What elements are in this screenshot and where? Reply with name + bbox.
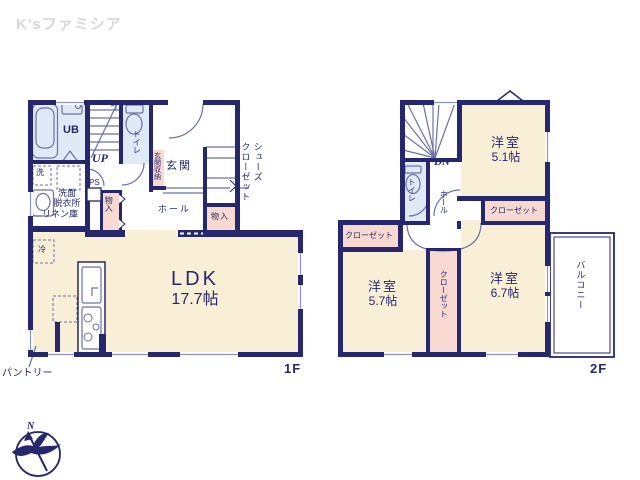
room-label-hall-2f: ホール [439,190,448,214]
room-label-hall-1f: ホール [158,204,191,214]
room-label-storage-inner: 物入 [104,196,113,212]
room-label-storage-right: 物入 [211,212,229,221]
room-label-balcony: バルコニー [575,260,585,310]
pipe-space-label: PS [89,178,100,187]
room-label-closet-a: クローゼット [490,206,538,215]
gable-vent-icon [497,91,523,101]
room-label-closet-c: クローゼット [439,270,448,340]
floor2-plan [338,91,614,357]
room-label-bedroom-c: 洋室 6.7帖 [466,272,544,301]
north-compass-icon [12,431,61,476]
room-label-closet-b: クローゼット [345,231,393,240]
floorplan-drawing [0,0,640,480]
room-label-toilet-2f: トイレ [407,178,416,202]
room-label-ldk: LDK 17.7帖 [130,268,260,309]
room-label-entrance: 玄関 [166,160,192,173]
fridge-label: 冷 [38,245,46,254]
washer-label: 洗 [36,168,44,177]
room-label-bedroom-a: 洋室 5.1帖 [468,136,544,165]
room-label-linen: リネン庫 [42,209,78,219]
floor2-tag: 2F [590,362,607,377]
floor1-plan [28,100,303,367]
stairs-down-label: DN [434,156,450,169]
room-label-shoes-closet: シューズ クローゼット [240,142,263,208]
brand-logo: K'sファミシア [16,13,122,34]
room-label-entrance-storage: 玄関収納 [153,152,161,180]
stairs-up-label: UP [92,152,108,166]
room-label-washroom: 洗面 脱衣所 [46,188,88,209]
room-label-toilet-1f: トイレ [132,130,141,154]
compass-north-label: N [27,421,34,433]
floorplan-page: K'sファミシア UB トイレ UP PS 玄関収納 玄関 シューズ クローゼッ… [0,0,640,480]
room-label-bedroom-b: 洋室 5.7帖 [344,280,422,309]
room-label-ub: UB [54,124,88,137]
room-label-pantry: パントリー [2,368,53,380]
floor1-tag: 1F [284,362,301,377]
